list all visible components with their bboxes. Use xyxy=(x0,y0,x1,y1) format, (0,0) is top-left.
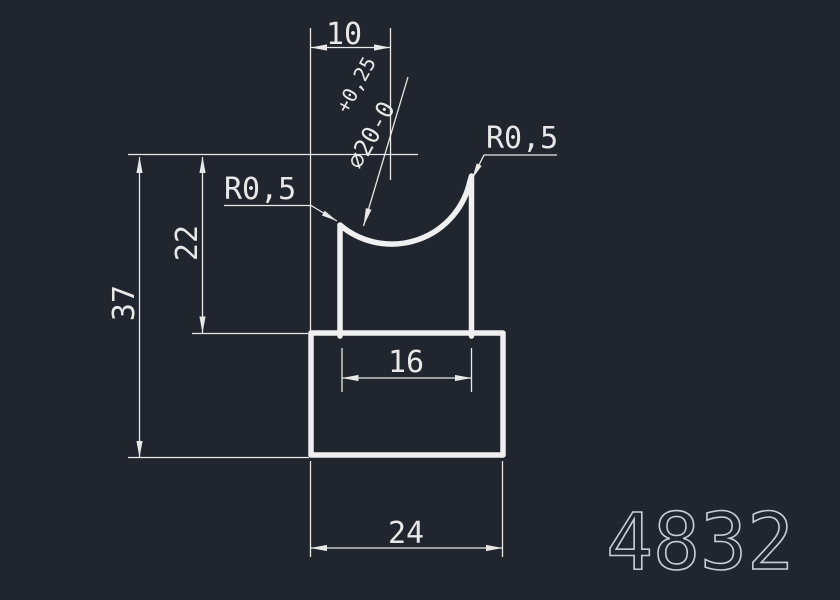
dim-text-radius-left: R0,5 xyxy=(224,172,296,207)
dim-text-total-height: 37 xyxy=(107,285,142,321)
arrow-radius-left xyxy=(322,211,337,221)
arrow-22-bottom xyxy=(199,317,205,334)
cad-drawing-canvas[interactable]: 10 +0,25 ⌀20-0 R0,5 R0,5 22 37 16 24 483… xyxy=(0,0,840,600)
arrow-22-top xyxy=(199,157,205,174)
dimension-arrows xyxy=(136,44,502,551)
arrow-16-right xyxy=(455,375,472,381)
cad-drawing-area: 10 +0,25 ⌀20-0 R0,5 R0,5 22 37 16 24 483… xyxy=(0,0,840,600)
leader-line-radius-right xyxy=(472,155,557,179)
arrow-10-left xyxy=(311,44,328,50)
dim-text-bottom-width: 24 xyxy=(388,516,424,551)
arrow-diameter-leader xyxy=(364,208,372,226)
arrow-24-right xyxy=(486,545,503,551)
dim-text-top-width: 10 xyxy=(326,17,362,52)
part-number-label: 4832 xyxy=(606,498,794,588)
arrow-37-bottom xyxy=(136,441,142,458)
arrow-16-left xyxy=(342,375,359,381)
arrow-10-right xyxy=(374,44,391,50)
tower-outline xyxy=(340,176,472,336)
arrow-37-top xyxy=(136,157,142,174)
part-outline xyxy=(311,176,503,455)
dim-text-radius-right: R0,5 xyxy=(486,121,558,156)
dim-text-inner-height: 22 xyxy=(170,225,205,261)
leader-line-radius-left xyxy=(224,206,337,222)
arrow-radius-right xyxy=(472,163,482,179)
dim-text-inner-width: 16 xyxy=(388,345,424,380)
arrow-24-left xyxy=(311,545,328,551)
